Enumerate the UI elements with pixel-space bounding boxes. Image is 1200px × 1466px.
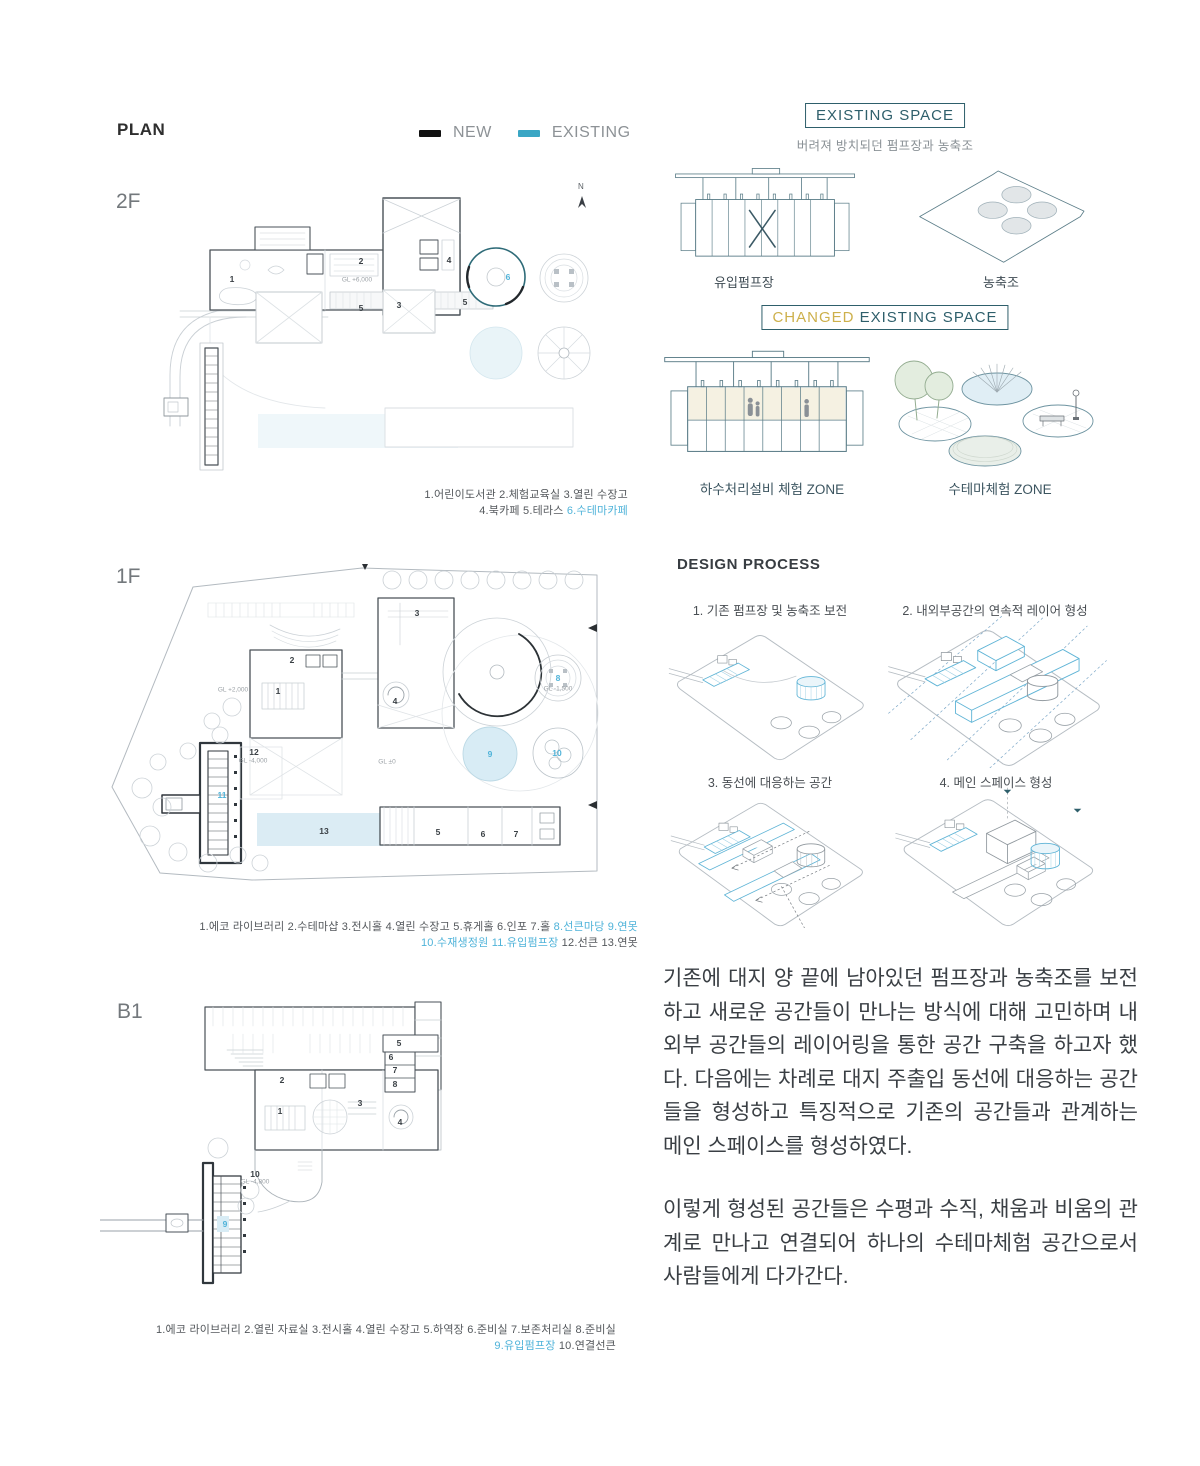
existing-thickener-tank-diagram: [905, 160, 1095, 265]
room-marker: 5: [436, 827, 441, 837]
thickener-tank-label: 농축조: [983, 272, 1019, 291]
plan-b1: GL -4,800 1 2 3 4 5 6 7 8 9 10: [100, 990, 550, 1320]
zone1-label: 하수처리설비 체험 ZONE: [700, 478, 844, 498]
room-marker: 8: [393, 1079, 398, 1089]
room-marker: 3: [358, 1098, 363, 1108]
room-marker: 7: [514, 829, 519, 839]
room-marker: 2: [359, 256, 364, 266]
room-marker: 4: [398, 1117, 403, 1127]
room-marker: 6: [506, 272, 511, 282]
gl-level-label: GL -4,800: [241, 1179, 270, 1186]
design-step-1-label: 1. 기존 펌프장 및 농축조 보전: [693, 600, 847, 619]
room-marker: 4: [393, 696, 398, 706]
caption-2f-line2-existing: 6.수테마카페: [567, 505, 628, 517]
room-marker: 11: [218, 790, 227, 800]
design-step-1-diagram: [662, 622, 877, 762]
gl-level-label: GL -1,500: [544, 686, 573, 693]
room-marker: 2: [280, 1075, 285, 1085]
room-marker: 4: [447, 255, 452, 265]
room-marker: 5: [359, 303, 364, 313]
description-paragraph-2: 이렇게 형성된 공간들은 수평과 수직, 채움과 비움의 관계로 만나고 연결되…: [663, 1193, 1138, 1294]
caption-1f-line2-existing: 10.수재생정원 11.유입펌프장: [421, 937, 558, 949]
gl-level-label: GL +2,000: [218, 687, 248, 694]
room-marker: 6: [389, 1052, 394, 1062]
room-marker: 13: [319, 826, 328, 836]
caption-2f-line2: 4.북카페 5.테라스: [479, 505, 567, 517]
room-marker: 8: [556, 673, 561, 683]
existing-space-words: EXISTING SPACE: [854, 309, 997, 326]
room-marker: 5: [397, 1038, 402, 1048]
changed-water-theme-diagram: [888, 343, 1103, 475]
caption-b1-line2-existing: 9.유입펌프장: [494, 1340, 555, 1352]
plan-1f-drawing: [100, 555, 630, 915]
room-marker: 10: [250, 1169, 259, 1179]
caption-2f: 1.어린이도서관 2.체험교육실 3.열린 수장고 4.북카페 5.테라스 6.…: [350, 488, 628, 519]
changed-word: CHANGED: [772, 309, 854, 326]
description-text: 기존에 대지 양 끝에 남아있던 펌프장과 농축조를 보전하고 새로운 공간들이…: [663, 962, 1138, 1294]
existing-space-title: EXISTING SPACE: [805, 103, 965, 128]
pump-station-label: 유입펌프장: [714, 272, 774, 291]
room-marker: 5: [463, 297, 468, 307]
existing-pump-station-diagram: [663, 163, 868, 268]
zone2-label: 수테마체험 ZONE: [948, 478, 1051, 498]
room-marker: 1: [276, 686, 281, 696]
design-step-3-diagram: [660, 790, 880, 928]
design-step-3-label: 3. 동선에 대응하는 공간: [708, 772, 832, 791]
room-marker: 9: [488, 749, 493, 759]
caption-b1-line2: 10.연결선큰: [556, 1340, 616, 1352]
design-process-title: DESIGN PROCESS: [677, 556, 820, 573]
north-label: N: [578, 182, 584, 191]
room-marker: 1: [230, 274, 235, 284]
plan-2f-drawing: [150, 180, 640, 490]
room-marker: 10: [552, 748, 561, 758]
room-marker: 2: [290, 655, 295, 665]
design-step-2-diagram: [885, 616, 1110, 768]
existing-color-swatch: [518, 130, 540, 137]
caption-b1-line1: 1.에코 라이브러리 2.열린 자료실 3.전시홀 4.열린 수장고 5.하역장…: [156, 1324, 616, 1336]
description-paragraph-1: 기존에 대지 양 끝에 남아있던 펌프장과 농축조를 보전하고 새로운 공간들이…: [663, 962, 1138, 1163]
changed-pump-station-diagram: [660, 345, 875, 465]
page-title: PLAN: [117, 120, 165, 140]
caption-1f-line2: 12.선큰 13.연못: [558, 937, 638, 949]
caption-1f: 1.에코 라이브러리 2.수테마샵 3.전시홀 4.열린 수장고 5.휴게홀 6…: [160, 920, 638, 951]
plan-1f: GL +2,000 GL ±0 GL -1,500 GL -4,000 1 2 …: [100, 555, 630, 915]
gl-level-label: GL ±0: [378, 759, 395, 766]
caption-1f-line1-existing: 8.선큰마당 9.연못: [554, 921, 638, 933]
room-marker: 3: [397, 300, 402, 310]
design-step-4-diagram: [885, 786, 1110, 928]
floor-label-2f: 2F: [116, 190, 141, 214]
changed-existing-space-title: CHANGED EXISTING SPACE: [761, 305, 1008, 330]
room-marker: 7: [393, 1065, 398, 1075]
caption-1f-line1: 1.에코 라이브러리 2.수테마샵 3.전시홀 4.열린 수장고 5.휴게홀 6…: [199, 921, 553, 933]
room-marker: 1: [278, 1106, 283, 1116]
gl-level-label: GL +6,000: [342, 277, 372, 284]
room-marker: 9: [223, 1219, 228, 1229]
caption-2f-line1: 1.어린이도서관 2.체험교육실 3.열린 수장고: [424, 489, 628, 501]
legend-existing-label: EXISTING: [552, 124, 631, 142]
new-color-swatch: [419, 130, 441, 137]
room-marker: 12: [249, 747, 258, 757]
caption-b1: 1.에코 라이브러리 2.열린 자료실 3.전시홀 4.열린 수장고 5.하역장…: [130, 1323, 616, 1354]
plan-legend: NEW EXISTING: [419, 124, 631, 142]
architecture-presentation-board: PLAN NEW EXISTING 2F: [0, 0, 1200, 1466]
existing-space-subtitle: 버려져 방치되던 펌프장과 농축조: [797, 135, 974, 154]
legend-new-label: NEW: [453, 124, 492, 142]
room-marker: 6: [481, 829, 486, 839]
gl-level-label: GL -4,000: [239, 758, 268, 765]
plan-2f: N GL +6,000 1 2 3 4 5 5 6: [150, 180, 640, 490]
plan-b1-drawing: [100, 990, 550, 1320]
room-marker: 3: [415, 608, 420, 618]
